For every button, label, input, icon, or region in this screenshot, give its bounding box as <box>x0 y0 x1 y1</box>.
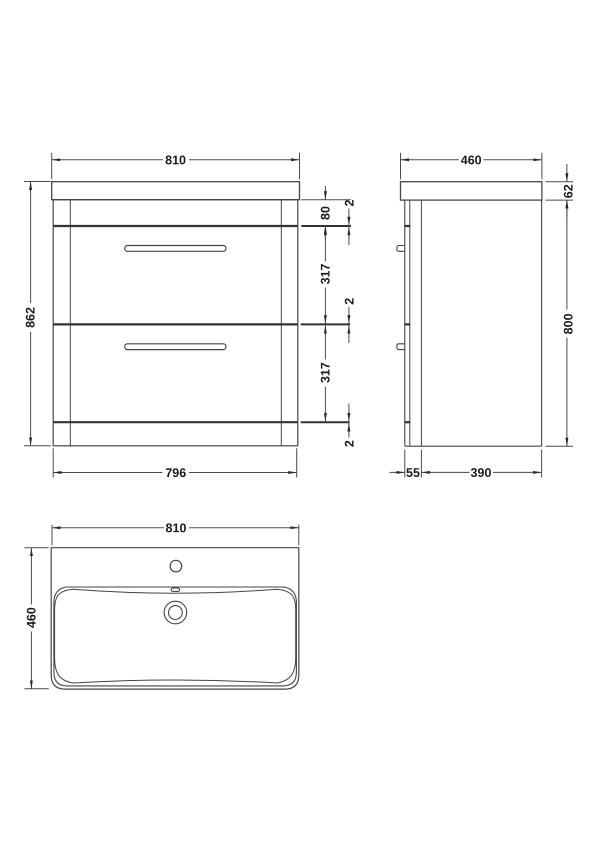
svg-text:317: 317 <box>319 362 333 383</box>
svg-text:460: 460 <box>25 607 39 628</box>
svg-text:810: 810 <box>165 153 186 167</box>
svg-text:62: 62 <box>562 184 576 198</box>
svg-text:800: 800 <box>562 313 576 334</box>
svg-text:55: 55 <box>406 466 420 480</box>
svg-text:2: 2 <box>342 440 356 447</box>
svg-text:2: 2 <box>342 298 356 305</box>
svg-text:862: 862 <box>23 307 37 328</box>
svg-text:390: 390 <box>471 466 492 480</box>
svg-text:810: 810 <box>166 521 187 535</box>
svg-text:2: 2 <box>342 199 356 206</box>
svg-text:317: 317 <box>319 264 333 285</box>
svg-text:80: 80 <box>319 206 333 220</box>
svg-text:796: 796 <box>165 466 186 480</box>
svg-text:460: 460 <box>461 153 482 167</box>
